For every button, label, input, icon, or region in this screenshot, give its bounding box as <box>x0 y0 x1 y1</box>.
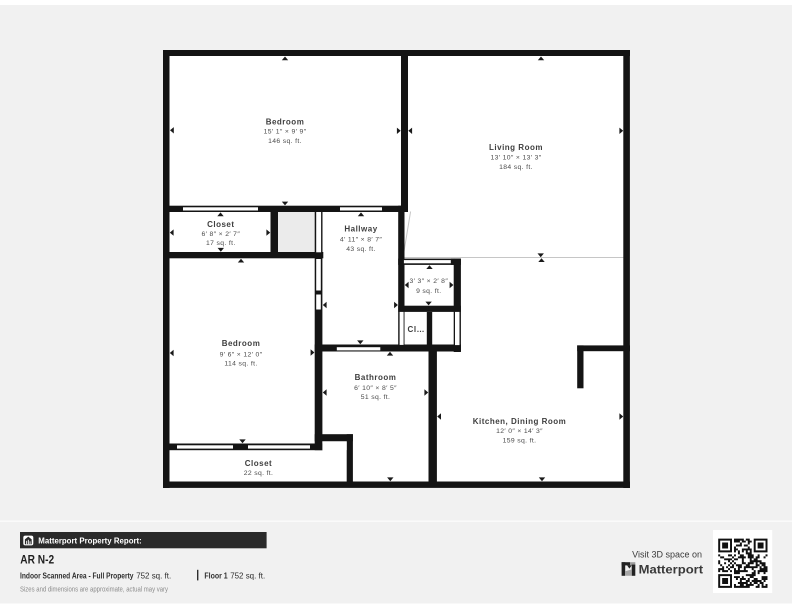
svg-text:17 sq. ft.: 17 sq. ft. <box>206 240 236 247</box>
svg-text:Cl…: Cl… <box>408 325 426 334</box>
svg-text:9 sq. ft.: 9 sq. ft. <box>416 288 441 295</box>
svg-text:184 sq. ft.: 184 sq. ft. <box>499 164 533 171</box>
svg-text:51 sq. ft.: 51 sq. ft. <box>361 394 391 401</box>
svg-text:6′ 10″ × 8′ 5″: 6′ 10″ × 8′ 5″ <box>354 385 397 392</box>
svg-text:Matterport Property Report:: Matterport Property Report: <box>38 535 142 545</box>
svg-text:Matterport: Matterport <box>639 564 704 577</box>
svg-text:Hallway: Hallway <box>344 224 377 233</box>
svg-text:Living Room: Living Room <box>489 143 543 152</box>
svg-text:Bedroom: Bedroom <box>222 339 261 348</box>
svg-text:22 sq. ft.: 22 sq. ft. <box>244 470 274 477</box>
svg-text:114 sq. ft.: 114 sq. ft. <box>224 361 257 368</box>
svg-text:12′ 0″ × 14′ 3″: 12′ 0″ × 14′ 3″ <box>496 428 543 435</box>
svg-text:Sizes and dimensions are appro: Sizes and dimensions are approximate, ac… <box>20 587 168 594</box>
svg-text:Bedroom: Bedroom <box>266 117 305 126</box>
svg-text:15′ 1″ × 9′ 9″: 15′ 1″ × 9′ 9″ <box>264 129 307 136</box>
svg-text:Bathroom: Bathroom <box>355 373 397 382</box>
svg-text:752 sq. ft.: 752 sq. ft. <box>136 571 171 581</box>
svg-text:Indoor Scanned Area - Full Pro: Indoor Scanned Area - Full Property <box>20 571 134 581</box>
svg-text:3′ 3″ × 2′ 8″: 3′ 3″ × 2′ 8″ <box>410 278 449 285</box>
svg-text:159 sq. ft.: 159 sq. ft. <box>503 438 537 445</box>
svg-text:Kitchen, Dining Room: Kitchen, Dining Room <box>473 417 567 426</box>
svg-text:4′ 11″ × 8′ 7″: 4′ 11″ × 8′ 7″ <box>340 236 382 243</box>
svg-text:146 sq. ft.: 146 sq. ft. <box>268 138 302 145</box>
svg-text:6′ 8″ × 2′ 7″: 6′ 8″ × 2′ 7″ <box>202 231 241 238</box>
svg-text:Floor 1: Floor 1 <box>204 571 227 581</box>
svg-text:Closet: Closet <box>207 220 234 229</box>
svg-text:43 sq. ft.: 43 sq. ft. <box>346 246 376 253</box>
svg-text:Visit 3D space on: Visit 3D space on <box>632 549 702 559</box>
svg-text:AR N-2: AR N-2 <box>20 553 54 567</box>
svg-text:9′ 6″ × 12′ 0″: 9′ 6″ × 12′ 0″ <box>220 351 263 358</box>
svg-text:752 sq. ft.: 752 sq. ft. <box>230 571 265 581</box>
svg-text:Closet: Closet <box>245 459 272 468</box>
svg-text:13′ 10″ × 13′ 3″: 13′ 10″ × 13′ 3″ <box>491 154 542 161</box>
